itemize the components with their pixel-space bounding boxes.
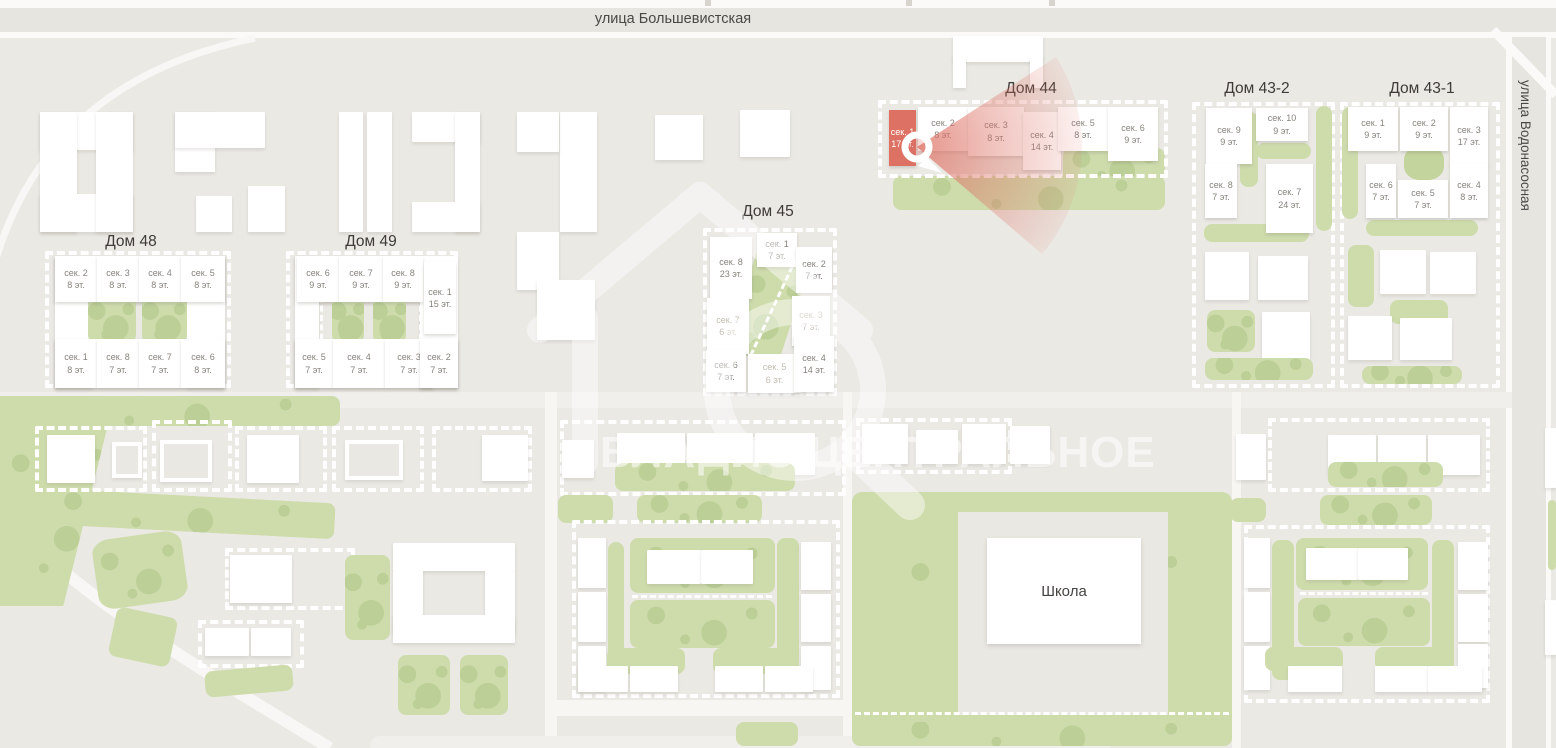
dom44-title: Дом 44 <box>1005 80 1057 98</box>
building <box>1380 250 1426 294</box>
green-area <box>91 529 190 611</box>
building <box>1375 666 1428 692</box>
building <box>578 538 606 588</box>
green-area <box>1328 462 1443 487</box>
building <box>412 202 480 232</box>
dom49-section-8[interactable]: сек. 89 эт. <box>383 256 423 302</box>
building <box>740 110 790 157</box>
green-area <box>1320 495 1432 525</box>
dom45-section-8[interactable]: сек. 823 эт. <box>710 237 752 299</box>
dom43-1-section-6[interactable]: сек. 67 эт. <box>1366 164 1396 218</box>
road-edge <box>0 32 1556 38</box>
green-area <box>736 722 798 746</box>
building <box>562 440 594 478</box>
dom49-section-2[interactable]: сек. 27 эт. <box>420 339 458 388</box>
building <box>916 430 958 464</box>
building <box>1244 538 1270 588</box>
dom43-1-section-4[interactable]: сек. 48 эт. <box>1450 164 1488 218</box>
building <box>205 628 249 656</box>
green-area <box>1366 220 1478 236</box>
building <box>1262 312 1310 360</box>
building <box>1205 252 1249 300</box>
dom43-2-section-8[interactable]: сек. 87 эт. <box>1205 164 1237 218</box>
dom48-title: Дом 48 <box>105 233 157 251</box>
dom49-section-6[interactable]: сек. 69 эт. <box>297 256 339 302</box>
building <box>537 280 595 340</box>
building <box>1458 542 1488 590</box>
dom48-section-6[interactable]: сек. 68 эт. <box>181 339 225 388</box>
building <box>862 424 908 464</box>
building <box>1428 666 1482 692</box>
green-area <box>460 655 508 715</box>
building <box>1430 252 1476 294</box>
dom49-section-7[interactable]: сек. 79 эт. <box>339 256 383 302</box>
green-area <box>332 296 364 343</box>
green-area <box>1316 106 1332 231</box>
green-area <box>398 655 450 715</box>
building <box>647 550 701 584</box>
dom43-2-section-9[interactable]: сек. 99 эт. <box>1206 108 1252 164</box>
masterplan-map: сек. 28 эт. сек. 38 эт. сек. 48 эт. сек.… <box>0 0 1556 748</box>
building <box>1400 318 1452 360</box>
dom45-section-6[interactable]: сек. 67 эт. <box>706 350 746 392</box>
dom43-2-section-10[interactable]: сек. 109 эт. <box>1256 108 1308 141</box>
street-top-label: улица Большевистская <box>595 11 751 27</box>
road-mark <box>906 0 912 6</box>
building <box>1258 256 1308 300</box>
road-mark <box>1049 0 1055 6</box>
building <box>367 112 392 232</box>
dom49-title: Дом 49 <box>345 233 397 251</box>
building <box>630 666 678 692</box>
building <box>1288 666 1342 692</box>
green-area <box>204 664 294 698</box>
green-area <box>1205 358 1313 380</box>
dom45-title: Дом 45 <box>742 203 794 221</box>
building <box>1545 600 1556 655</box>
dom43-1-section-3[interactable]: сек. 317 эт. <box>1450 107 1488 165</box>
green-area <box>1548 500 1556 570</box>
path-dashed <box>1300 592 1428 595</box>
building <box>1010 426 1050 464</box>
building <box>175 112 265 148</box>
school-label: Школа <box>1041 583 1087 600</box>
building <box>765 666 813 692</box>
building <box>578 592 606 642</box>
building <box>230 555 292 603</box>
building <box>248 186 285 232</box>
dom43-1-section-5[interactable]: сек. 57 эт. <box>1398 180 1448 218</box>
green-area <box>852 722 1232 746</box>
building <box>1244 592 1270 642</box>
road-edge <box>0 0 1556 8</box>
green-area <box>1362 366 1462 384</box>
dom48-section-5[interactable]: сек. 58 эт. <box>181 256 225 302</box>
building <box>715 666 763 692</box>
building <box>96 112 133 232</box>
dom48-section-8[interactable]: сек. 87 эт. <box>97 339 139 388</box>
path-dashed <box>632 595 772 598</box>
building <box>339 112 363 232</box>
dom44-section-6[interactable]: сек. 69 эт. <box>1108 107 1158 161</box>
building <box>196 196 232 232</box>
dom48-section-3[interactable]: сек. 38 эт. <box>97 256 139 302</box>
green-area <box>630 600 775 648</box>
building <box>517 112 559 152</box>
building <box>1306 548 1358 580</box>
building <box>1236 434 1266 480</box>
courtyard <box>112 442 142 478</box>
dom49-section-4[interactable]: сек. 47 эт. <box>333 339 385 388</box>
green-area <box>142 296 187 343</box>
building <box>801 542 831 590</box>
building <box>1545 428 1556 488</box>
road-mark <box>705 0 711 6</box>
dom43-1-title: Дом 43-1 <box>1389 80 1454 98</box>
dom49-section-1[interactable]: сек. 115 эт. <box>424 262 456 334</box>
green-area <box>345 555 390 640</box>
dom48-section-2[interactable]: сек. 28 эт. <box>55 256 97 302</box>
green-area <box>1348 245 1374 307</box>
street-bolshevistskaya <box>0 8 1556 32</box>
building <box>578 666 628 692</box>
building <box>801 594 831 642</box>
green-area <box>558 495 613 523</box>
green-area <box>637 495 762 523</box>
dom45-section-4[interactable]: сек. 414 эт. <box>794 336 834 392</box>
dom43-2-section-7[interactable]: сек. 724 эт. <box>1266 164 1313 233</box>
dom43-1-section-1[interactable]: сек. 19 эт. <box>1348 107 1398 151</box>
building <box>393 543 515 571</box>
green-area <box>1230 498 1266 522</box>
green-area <box>1207 310 1255 352</box>
building <box>655 115 703 160</box>
dom43-2-title: Дом 43-2 <box>1224 80 1289 98</box>
dom45-section-1[interactable]: сек. 17 эт. <box>757 233 797 267</box>
road <box>556 700 846 716</box>
path-dashed <box>855 712 1229 715</box>
green-area <box>893 176 1165 210</box>
dom44-section-5[interactable]: сек. 58 эт. <box>1058 107 1108 151</box>
building <box>482 435 528 481</box>
building <box>393 615 515 643</box>
building <box>962 424 1006 464</box>
courtyard <box>345 440 403 480</box>
green-area <box>1256 143 1311 159</box>
building <box>247 435 299 483</box>
dom44-section-3[interactable]: сек. 38 эт. <box>968 107 1024 156</box>
building <box>560 112 597 232</box>
school-building: Школа <box>987 538 1141 644</box>
dom45-section-2[interactable]: сек. 27 эт. <box>796 247 832 293</box>
road <box>545 392 557 748</box>
street-right-label: улица Водонасосная <box>1518 80 1533 211</box>
building <box>251 628 291 656</box>
courtyard <box>160 440 212 482</box>
building <box>1458 594 1488 642</box>
green-area <box>1298 598 1430 646</box>
dom45-section-7[interactable]: сек. 76 эт. <box>707 298 749 354</box>
building <box>47 435 95 483</box>
dom44-section-4[interactable]: сек. 414 эт. <box>1023 112 1061 170</box>
building <box>701 550 753 584</box>
dom43-1-section-2[interactable]: сек. 29 эт. <box>1400 107 1448 151</box>
dom49-section-5[interactable]: сек. 57 эт. <box>295 339 333 388</box>
building <box>953 56 966 88</box>
dom48-section-4[interactable]: сек. 48 эт. <box>139 256 181 302</box>
dom48-section-7[interactable]: сек. 77 эт. <box>139 339 181 388</box>
building <box>1358 548 1408 580</box>
building <box>1348 316 1392 360</box>
dom48-section-1[interactable]: сек. 18 эт. <box>55 339 97 388</box>
green-area <box>373 296 406 343</box>
green-area <box>107 606 178 668</box>
green-area <box>1404 146 1444 180</box>
green-area <box>88 296 136 343</box>
green-area <box>615 463 795 491</box>
